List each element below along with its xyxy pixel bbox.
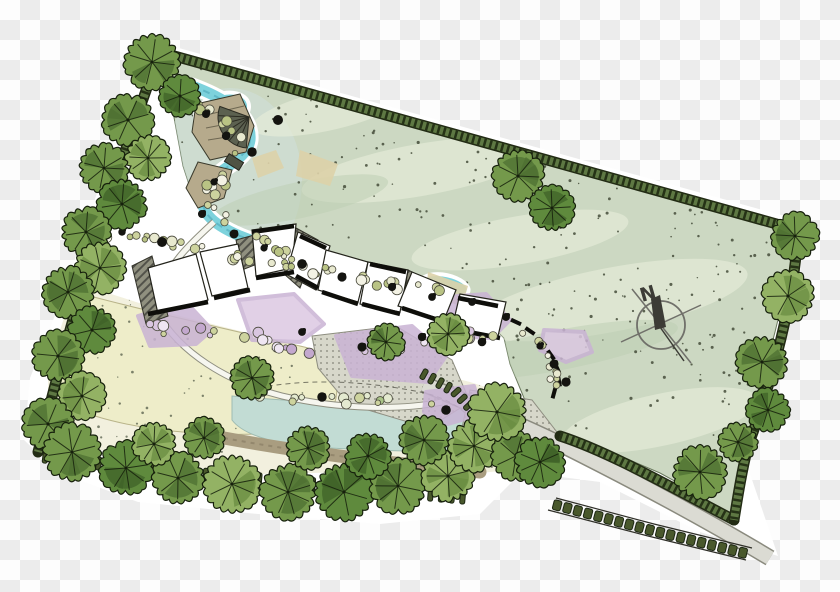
hedge-tie <box>738 547 748 559</box>
tree-symbol <box>735 337 788 389</box>
accent-shrub <box>273 115 283 125</box>
shrub <box>274 247 283 256</box>
hedge-tie <box>665 529 675 541</box>
shrub <box>265 238 271 244</box>
hedge-tie <box>717 542 727 554</box>
shrub <box>322 264 329 271</box>
shrub <box>211 205 217 211</box>
hedge-tie <box>562 502 572 514</box>
shrub <box>217 175 228 186</box>
accent-shrub <box>157 237 167 247</box>
shrub <box>428 401 434 407</box>
shrub <box>167 236 177 246</box>
shrub <box>232 150 238 156</box>
shrub <box>329 266 336 273</box>
shrub <box>545 353 551 359</box>
shrub <box>434 286 444 296</box>
shrub <box>289 256 295 262</box>
shrub <box>287 344 297 354</box>
shrub <box>142 237 148 243</box>
shrub <box>253 232 261 240</box>
shrub <box>372 281 381 290</box>
hedge-tie <box>624 519 634 531</box>
shrub <box>190 244 199 253</box>
hedge-tie <box>727 544 737 556</box>
shrub <box>383 394 392 403</box>
shrub <box>178 239 185 246</box>
shrub <box>127 234 133 240</box>
hedge-tie <box>676 532 686 544</box>
landscape-site-plan: N <box>0 0 840 592</box>
shrub <box>415 282 421 288</box>
shrub <box>222 116 232 126</box>
hedge-tie <box>593 510 603 522</box>
tree-symbol <box>529 184 576 230</box>
hedge-tie <box>552 500 562 512</box>
shrub <box>375 400 381 406</box>
shrub <box>223 212 229 218</box>
shrub <box>489 332 498 341</box>
shrub <box>547 376 554 383</box>
shrub <box>553 370 561 378</box>
shrub <box>341 399 351 409</box>
shrub <box>364 392 370 398</box>
shrub <box>329 393 335 399</box>
shrub <box>196 323 206 333</box>
hedge-tie <box>583 508 593 520</box>
hedge-tie <box>603 513 613 525</box>
hedge-tie <box>655 527 665 539</box>
shrub <box>288 263 294 269</box>
shrub <box>204 202 211 209</box>
shrub <box>289 398 296 405</box>
shrub <box>158 320 169 331</box>
hedge-tie <box>645 524 655 536</box>
shrub <box>237 133 246 142</box>
shrub <box>355 393 365 403</box>
shrub <box>245 257 254 266</box>
hedge-tie <box>614 516 624 528</box>
transparency-checkerboard: N <box>0 0 840 592</box>
shrub <box>520 330 526 336</box>
hedge-tie <box>696 537 706 549</box>
shrub <box>210 327 217 334</box>
hedge-tie <box>686 534 696 546</box>
shrub <box>257 335 267 345</box>
shrub <box>234 253 242 261</box>
shrub <box>221 218 228 225</box>
shrub <box>299 394 305 400</box>
shrub <box>132 232 140 240</box>
shrub <box>274 344 283 353</box>
tree-symbol <box>183 416 225 458</box>
shrub <box>240 332 250 342</box>
hedge-tie <box>573 505 583 517</box>
shrub <box>268 259 275 266</box>
shrub <box>146 320 153 327</box>
shrub <box>182 327 190 335</box>
shrub <box>356 275 367 286</box>
hedge-tie <box>707 539 717 551</box>
shrub <box>553 382 560 389</box>
shrub <box>304 348 314 358</box>
shrub <box>210 190 220 200</box>
shrub <box>308 269 318 279</box>
shrub <box>161 331 167 337</box>
shrub <box>199 243 205 249</box>
hedge-tie <box>634 521 644 533</box>
